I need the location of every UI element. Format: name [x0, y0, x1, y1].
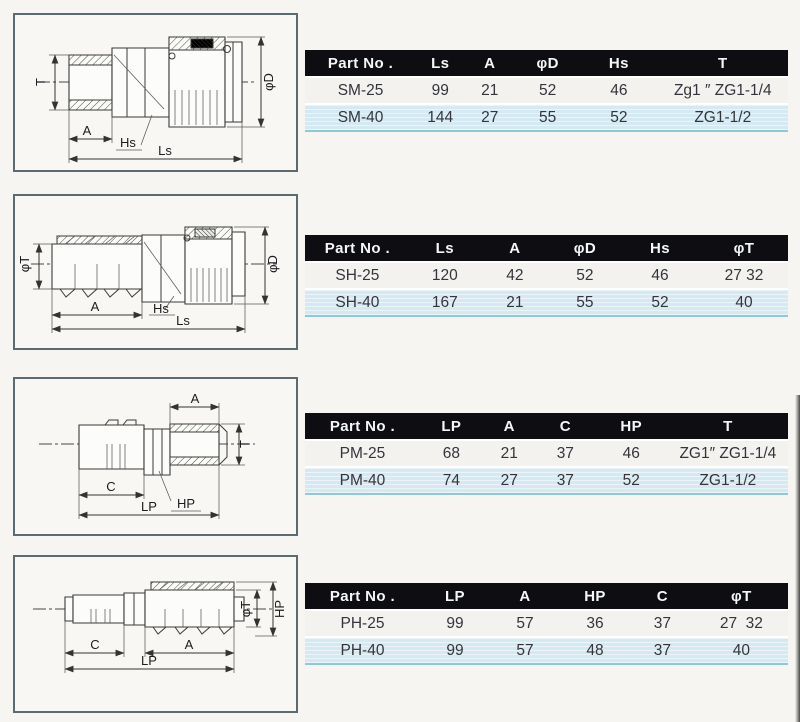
spec-cell: ZG1-1/2 [658, 104, 788, 131]
table-row: SH-40 167 21 55 52 40 [305, 289, 788, 316]
dim-label-ls: Ls [176, 313, 190, 328]
spec-table-sh: Part No . Ls A φD Hs φT SH-25 120 42 52 … [305, 235, 788, 317]
spec-cell: 68 [420, 440, 483, 467]
spec-cell: 52 [515, 77, 580, 104]
table-header-row: Part No . LP A C HP T [305, 413, 788, 440]
drawing-box-pm: A T C HP LP [13, 377, 298, 536]
spec-cell: 27 32 [695, 610, 788, 637]
drawing-linework [37, 37, 265, 163]
drawing-box-sm: T φD A Hs Ls [13, 13, 298, 172]
dim-label-c: C [90, 637, 99, 652]
col-header: φD [550, 235, 620, 262]
drawing-box-ph: φT HP C A LP [13, 555, 298, 713]
dim-label-phi-d: φD [265, 255, 280, 273]
col-header: A [490, 583, 560, 610]
dim-label-hp: HP [272, 600, 287, 618]
col-header: φT [695, 583, 788, 610]
ph-plug-drawing: φT HP C A LP [15, 557, 296, 711]
spec-cell: 27 32 [700, 262, 788, 289]
spec-cell: 46 [580, 77, 657, 104]
spec-cell: 46 [595, 440, 668, 467]
dim-label-ls: Ls [158, 143, 172, 158]
spec-cell: 55 [550, 289, 620, 316]
col-header: Ls [410, 235, 480, 262]
dim-label-a: A [91, 299, 100, 314]
spec-cell: 57 [490, 610, 560, 637]
spec-cell: PH-40 [305, 637, 420, 664]
sm-coupling-drawing: T φD A Hs Ls [15, 15, 296, 170]
spec-cell: 167 [410, 289, 480, 316]
dim-label-lp: LP [141, 653, 157, 668]
spec-cell: SM-25 [305, 77, 416, 104]
table-row: PH-25 99 57 36 37 27 32 [305, 610, 788, 637]
col-header: C [630, 583, 695, 610]
spec-table-sm: Part No . Ls A φD Hs T SM-25 99 21 52 46… [305, 50, 788, 132]
dim-label-c: C [106, 479, 115, 494]
spec-cell: 21 [464, 77, 515, 104]
spec-cell: 40 [695, 637, 788, 664]
col-header: Hs [620, 235, 700, 262]
col-header: Part No . [305, 583, 420, 610]
col-header: HP [595, 413, 668, 440]
table-row: PH-40 99 57 48 37 40 [305, 637, 788, 664]
sh-coupling-drawing: φT φD A Hs Ls [15, 196, 296, 348]
spec-table-pm: Part No . LP A C HP T PM-25 68 21 37 46 … [305, 413, 788, 495]
dim-label-hp: HP [177, 496, 195, 511]
col-header: Part No . [305, 413, 420, 440]
spec-cell: 99 [420, 610, 490, 637]
spec-cell: 27 [483, 467, 536, 494]
table-row: SM-40 144 27 55 52 ZG1-1/2 [305, 104, 788, 131]
spec-table-ph: Part No . LP A HP C φT PH-25 99 57 36 37… [305, 583, 788, 665]
spec-cell: 144 [416, 104, 464, 131]
col-header: Ls [416, 50, 464, 77]
spec-cell: 21 [483, 440, 536, 467]
col-header: HP [560, 583, 630, 610]
spec-cell: 52 [595, 467, 668, 494]
col-header: Hs [580, 50, 657, 77]
col-header: A [483, 413, 536, 440]
spec-cell: PM-25 [305, 440, 420, 467]
spec-cell: 42 [480, 262, 550, 289]
table-row: PM-25 68 21 37 46 ZG1″ ZG1-1/4 [305, 440, 788, 467]
col-header: LP [420, 583, 490, 610]
dim-label-a: A [185, 637, 194, 652]
table-header-row: Part No . LP A HP C φT [305, 583, 788, 610]
spec-cell: 120 [410, 262, 480, 289]
spec-cell: 27 [464, 104, 515, 131]
spec-cell: 55 [515, 104, 580, 131]
table-header-row: Part No . Ls A φD Hs T [305, 50, 788, 77]
spec-cell: PH-25 [305, 610, 420, 637]
dim-label-hs: Hs [153, 301, 169, 316]
dim-label-phi-d: φD [261, 73, 276, 91]
spec-cell: SH-40 [305, 289, 410, 316]
col-header: A [480, 235, 550, 262]
dim-label-a: A [83, 123, 92, 138]
spec-cell: 21 [480, 289, 550, 316]
spec-cell: 99 [416, 77, 464, 104]
spec-cell: 37 [630, 610, 695, 637]
table-row: SM-25 99 21 52 46 Zg1 ″ ZG1-1/4 [305, 77, 788, 104]
spec-cell: 57 [490, 637, 560, 664]
spec-cell: 46 [620, 262, 700, 289]
col-header: φD [515, 50, 580, 77]
col-header: Part No . [305, 50, 416, 77]
spec-cell: 52 [580, 104, 657, 131]
spec-cell: 36 [560, 610, 630, 637]
table-header-row: Part No . Ls A φD Hs φT [305, 235, 788, 262]
dim-label-phi-t: φT [17, 256, 32, 272]
spec-cell: 37 [536, 440, 595, 467]
dim-label-hs: Hs [120, 135, 136, 150]
spec-cell: SM-40 [305, 104, 416, 131]
table-row: SH-25 120 42 52 46 27 32 [305, 262, 788, 289]
spec-cell: 48 [560, 637, 630, 664]
spec-cell: 52 [620, 289, 700, 316]
dim-label-t: T [33, 78, 48, 86]
dim-label-phi-t: φT [238, 601, 253, 617]
spec-cell: SH-25 [305, 262, 410, 289]
col-header: C [536, 413, 595, 440]
col-header: φT [700, 235, 788, 262]
spec-cell: 99 [420, 637, 490, 664]
spec-cell: 74 [420, 467, 483, 494]
col-header: A [464, 50, 515, 77]
spec-cell: Zg1 ″ ZG1-1/4 [658, 77, 788, 104]
spec-cell: 37 [536, 467, 595, 494]
scan-edge-artifact [795, 395, 800, 722]
drawing-linework [31, 227, 277, 333]
spec-cell: 40 [700, 289, 788, 316]
spec-cell: ZG1-1/2 [668, 467, 788, 494]
catalog-page: T φD A Hs Ls Part No . Ls A φD Hs T SM-2… [0, 0, 800, 722]
spec-cell: ZG1″ ZG1-1/4 [668, 440, 788, 467]
col-header: LP [420, 413, 483, 440]
col-header: Part No . [305, 235, 410, 262]
table-row: PM-40 74 27 37 52 ZG1-1/2 [305, 467, 788, 494]
spec-cell: PM-40 [305, 467, 420, 494]
col-header: T [658, 50, 788, 77]
pm-plug-drawing: A T C HP LP [15, 379, 296, 534]
dim-label-lp: LP [141, 499, 157, 514]
dim-label-a: A [191, 391, 200, 406]
spec-cell: 52 [550, 262, 620, 289]
drawing-box-sh: φT φD A Hs Ls [13, 194, 298, 350]
col-header: T [668, 413, 788, 440]
dim-label-t: T [237, 440, 252, 448]
spec-cell: 37 [630, 637, 695, 664]
